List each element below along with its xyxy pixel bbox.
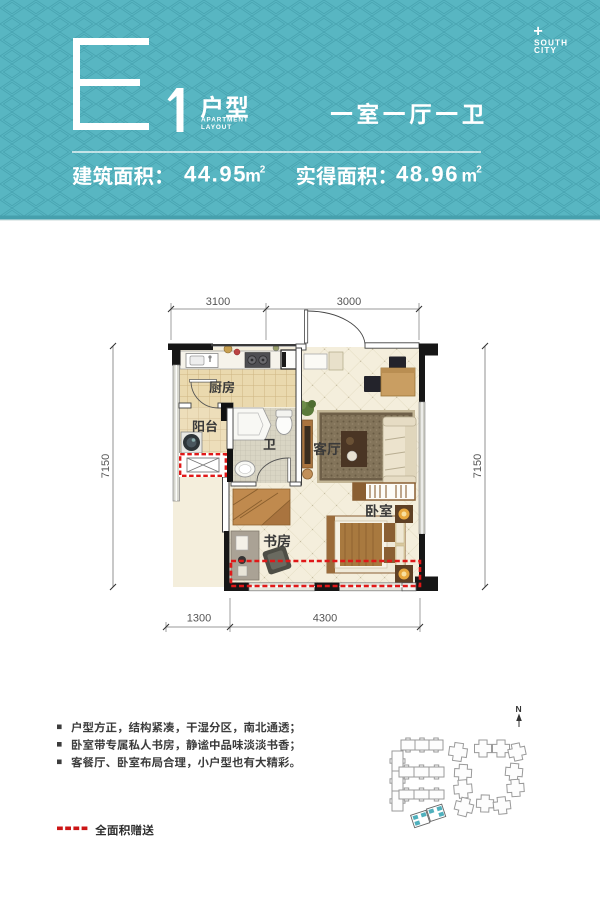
svg-text:2: 2 (260, 165, 266, 176)
svg-text:N: N (516, 704, 522, 714)
svg-text:APARTMENT: APARTMENT (201, 117, 249, 124)
svg-text:7150: 7150 (100, 454, 112, 478)
svg-text:2: 2 (476, 165, 482, 176)
svg-text:m: m (462, 166, 478, 186)
svg-text:48.96: 48.96 (396, 162, 459, 187)
svg-text:LAYOUT: LAYOUT (201, 124, 232, 131)
svg-text:3000: 3000 (337, 296, 361, 308)
svg-text:CITY: CITY (534, 46, 557, 55)
svg-text:m: m (245, 166, 261, 186)
svg-text:1300: 1300 (187, 613, 211, 625)
svg-text:7150: 7150 (472, 454, 484, 478)
svg-text:4300: 4300 (313, 613, 337, 625)
svg-text:44.95: 44.95 (184, 162, 247, 187)
svg-text:3100: 3100 (206, 296, 230, 308)
